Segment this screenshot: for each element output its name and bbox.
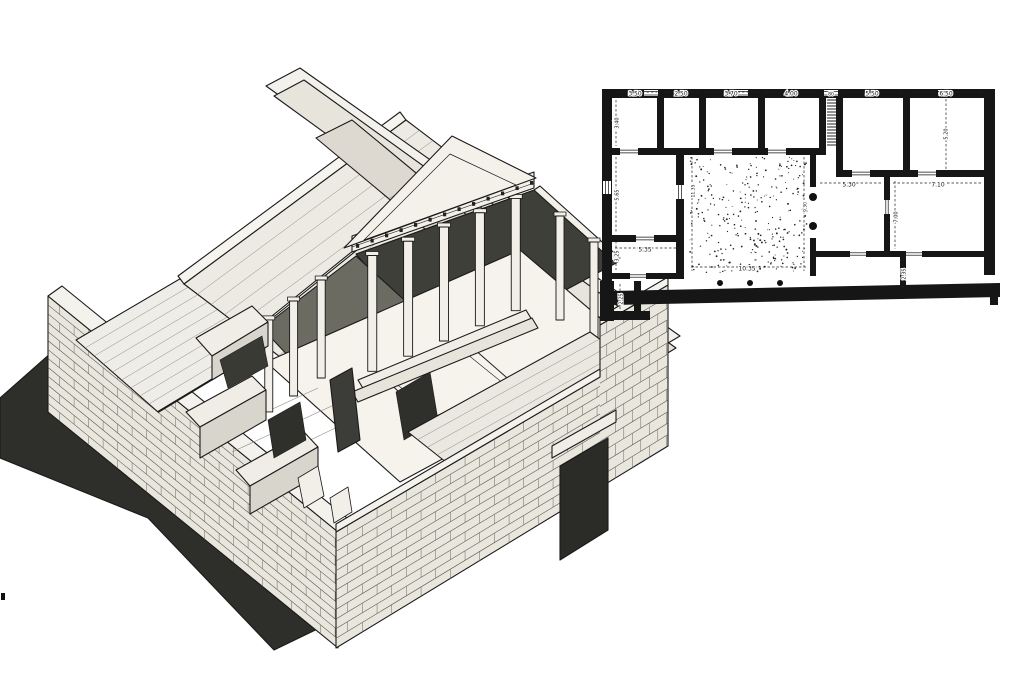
- plan-dimension-label: 6.50: [939, 91, 953, 98]
- plan-dimension-label: 7.10: [931, 182, 945, 189]
- plan-dimension-label: 3.70: [724, 91, 738, 98]
- axonometric-cutaway-drawing: [0, 68, 680, 650]
- scan-artifact: [1, 593, 5, 600]
- plan-dimension-label: 11.35: [691, 184, 697, 197]
- figure-page: 3.502.503.704.00805.506.503.405.205.6511…: [0, 0, 1024, 687]
- plan-dimension-label: 5.65: [615, 189, 621, 200]
- plan-dimension-label: 3.40: [615, 117, 621, 128]
- plan-dimension-label: 4.00: [784, 91, 798, 98]
- plan-dimension-label: 10.35: [738, 266, 755, 273]
- plan-dimension-label: 5.50: [865, 91, 879, 98]
- courtyard-stipple: [689, 157, 808, 273]
- plan-dimension-label: 7.00: [894, 211, 900, 222]
- stair-passage: [827, 100, 836, 145]
- plan-dimension-label: 2.35: [902, 268, 908, 279]
- plan-dimension-label: 3.25: [615, 250, 621, 261]
- plan-dimension-label: 2.25: [619, 293, 625, 304]
- plan-dimension-labels: 3.502.503.704.00805.506.503.405.205.6511…: [615, 91, 984, 317]
- plan-dimension-label: 9.30: [803, 202, 809, 212]
- plan-dimension-label: 5.20: [944, 128, 950, 139]
- plan-dimension-label: 3.50: [628, 91, 642, 98]
- plan-dimension-label: 5.35: [638, 247, 652, 254]
- archaeology-figure: 3.502.503.704.00805.506.503.405.205.6511…: [0, 0, 1024, 687]
- plan-dimension-label: 5.30: [842, 182, 856, 189]
- plan-dimension-label: 2.50: [674, 91, 688, 98]
- plan-dimension-label: 80: [828, 92, 834, 98]
